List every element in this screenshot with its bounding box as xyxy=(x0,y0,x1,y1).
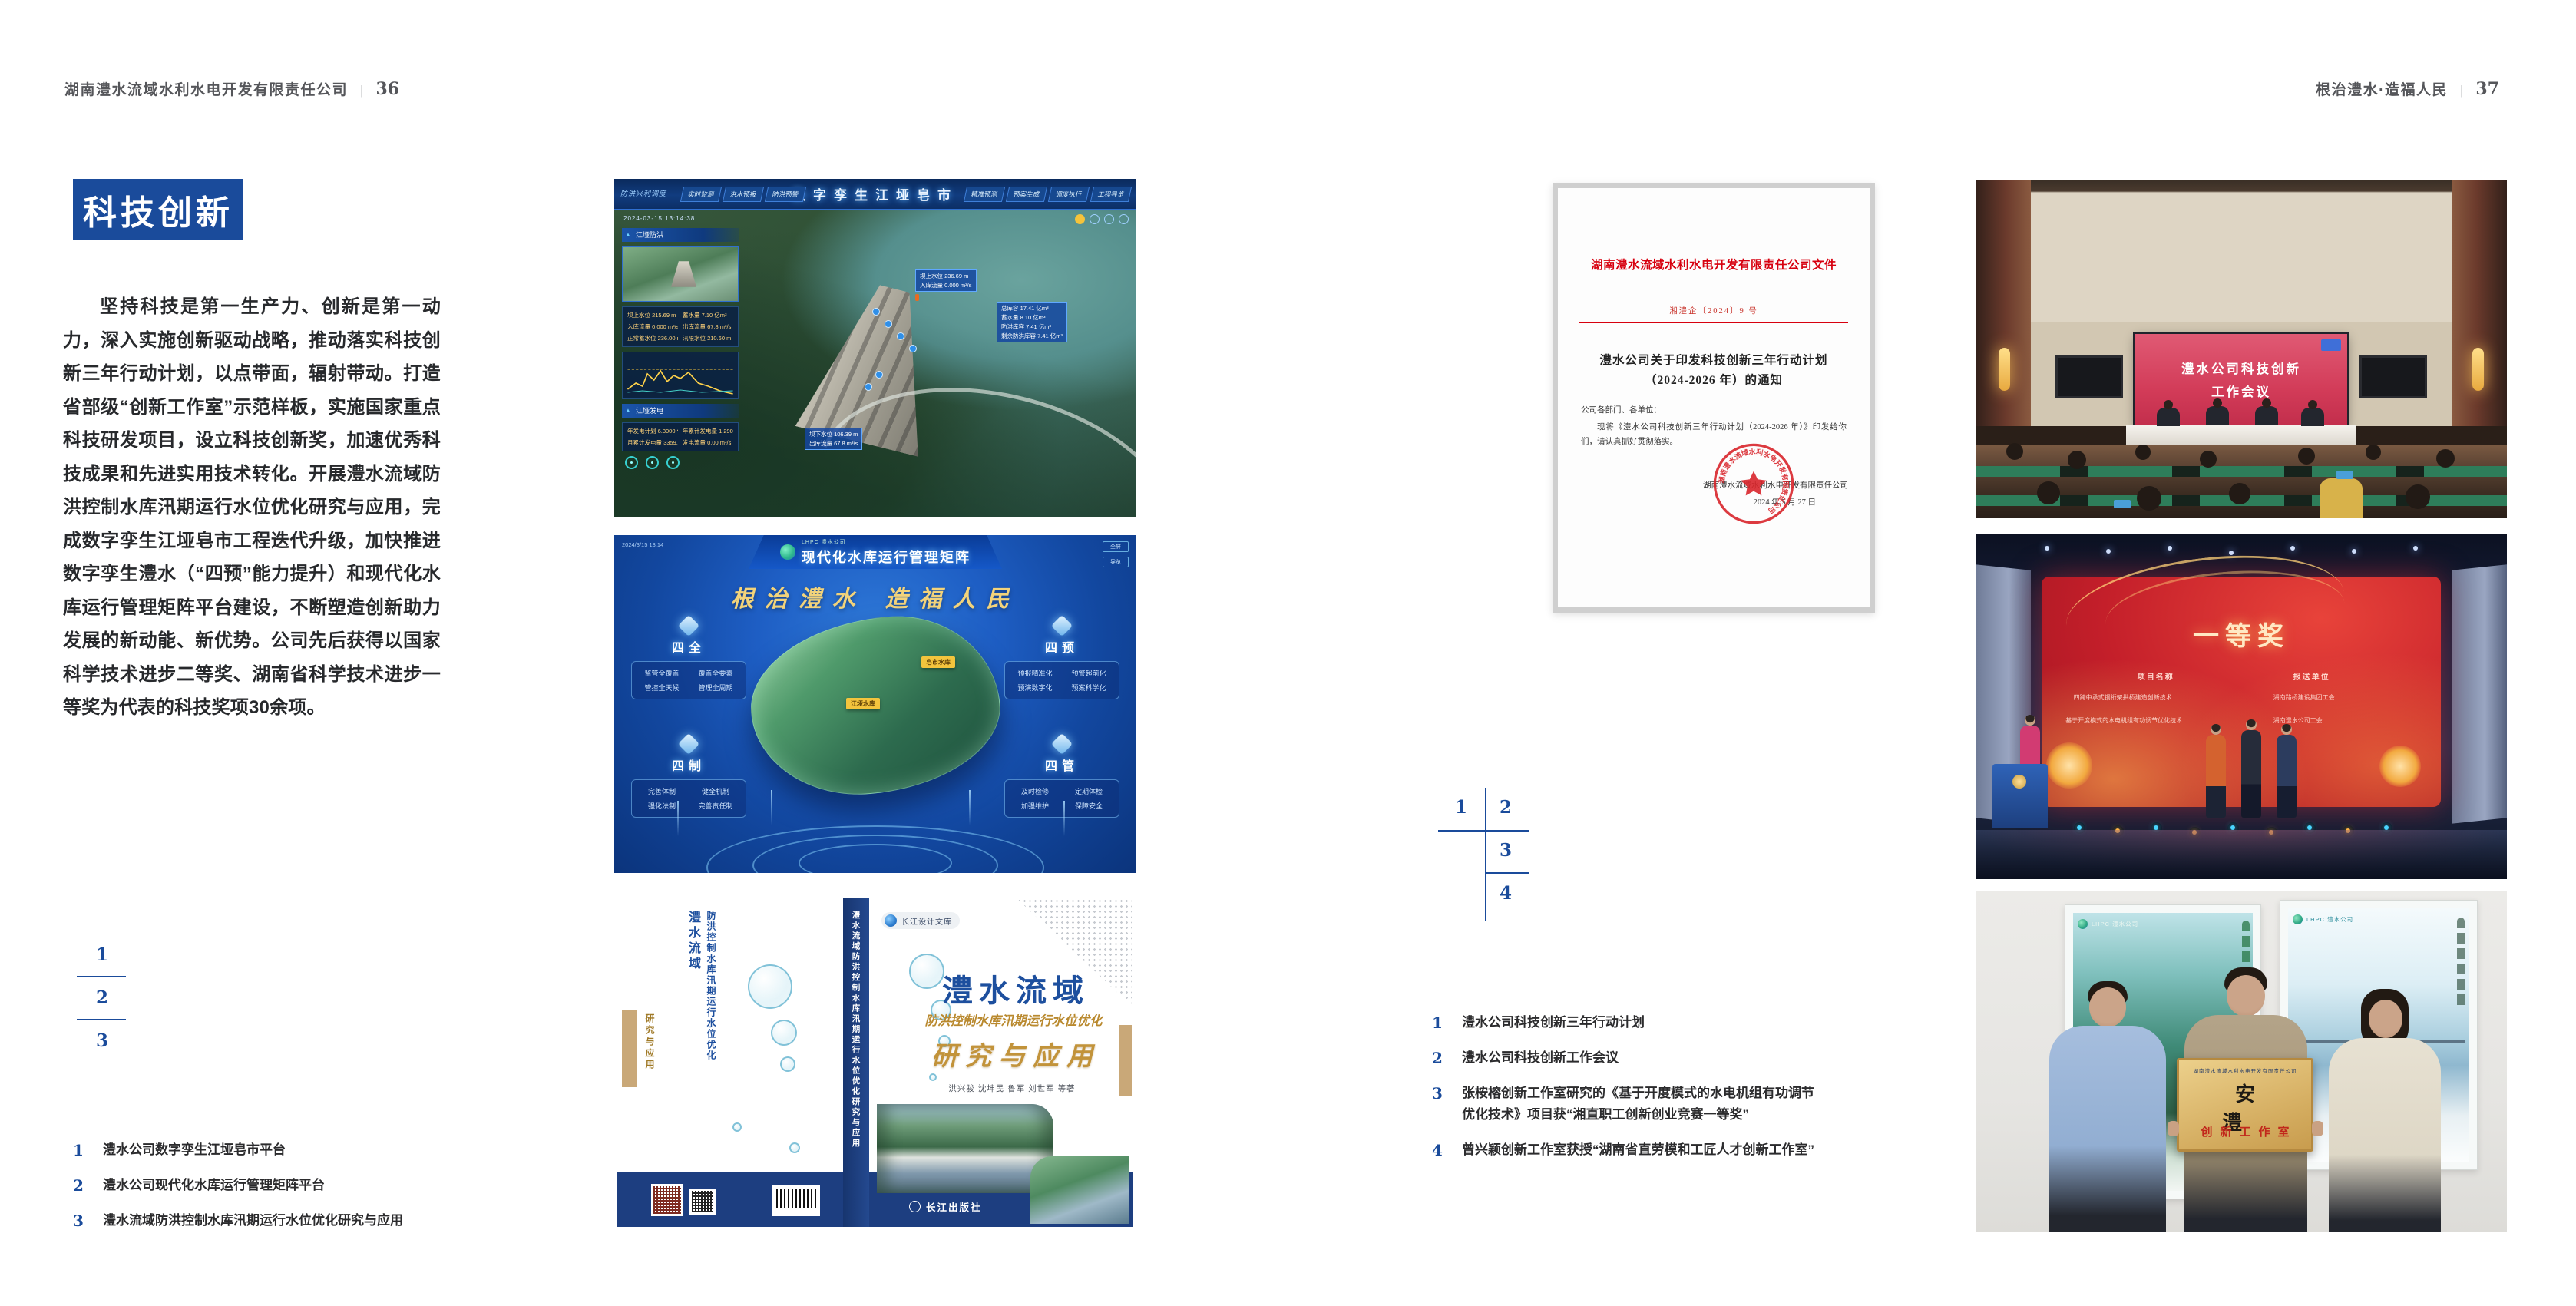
gauge-icon xyxy=(625,456,638,469)
group-item: 加强维护 xyxy=(1010,801,1060,811)
tab-prediction: 精准预测 xyxy=(964,187,1005,202)
audience-floor xyxy=(1976,445,2507,518)
group-item: 强化法制 xyxy=(637,801,687,811)
publisher-logo-icon xyxy=(885,914,897,927)
header-divider: | xyxy=(360,83,363,98)
group-icon xyxy=(1051,733,1073,755)
caption-text: 澧水公司现代化水库运行管理矩阵平台 xyxy=(103,1175,325,1196)
ceiling-lights xyxy=(1976,180,2507,322)
screen-logo-icon xyxy=(2321,339,2341,351)
figure-matrix-platform: 2024/3/15 13:14 全屏 导览 LHPC 澧水公司 现代化水库运行管… xyxy=(614,535,1136,873)
light-pillar xyxy=(677,801,679,836)
dashboard-timestamp: 2024-03-15 13:14:38 xyxy=(623,215,695,222)
dashboard-left-sidebar: 江垭防洪 坝上水位 215.69 m 蓄水量 7.10 亿m³ 入库流量 0.0… xyxy=(622,228,739,511)
audience-head xyxy=(2068,451,2086,469)
group-item: 及时检修 xyxy=(1010,786,1060,796)
light-pillar xyxy=(771,790,772,825)
poster-logo-text: LHPC 澧水公司 xyxy=(2306,915,2353,924)
hand xyxy=(2312,1121,2323,1136)
project-cell: 基于开度模式的水电机组有功调节优化技术 xyxy=(2065,716,2182,725)
glow-orb xyxy=(2379,746,2421,787)
poster-logo: LHPC 澧水公司 xyxy=(2293,914,2353,924)
series-label: 长江设计文库 xyxy=(881,912,960,929)
tag-row: 蓄水量 8.10 亿m³ xyxy=(1001,313,1063,322)
captions-right: 1 澧水公司科技创新三年行动计划 2 澧水公司科技创新工作会议 3 张桉榕创新工… xyxy=(1432,1012,1954,1175)
figure-index-1: 1 xyxy=(1450,797,1473,818)
gate-marker-icon xyxy=(865,383,872,391)
lhpc-logo-icon xyxy=(2293,914,2303,924)
lhpc-logo-icon xyxy=(2078,919,2088,929)
tab-project-tour: 工程导览 xyxy=(1090,187,1132,202)
caption-number: 4 xyxy=(1432,1139,1450,1161)
bubble-decoration xyxy=(789,1142,800,1153)
woman-face xyxy=(2369,1000,2402,1038)
tissue-box xyxy=(2336,471,2353,479)
publisher-mark: 长江出版社 xyxy=(909,1199,982,1214)
qr-code xyxy=(689,1189,716,1215)
caption-text: 澧水公司科技创新工作会议 xyxy=(1462,1047,1619,1069)
powerstation-photo xyxy=(1030,1156,1129,1224)
metric-row: 入库流量 0.000 m³/s xyxy=(627,322,678,331)
caption-number: 3 xyxy=(1432,1083,1450,1104)
back-title2: 研究与应用 xyxy=(643,1013,656,1071)
glow-orb xyxy=(2046,742,2092,789)
light-pillar xyxy=(969,790,971,825)
series-text: 长江设计文库 xyxy=(901,915,952,927)
poster-logo-text: LHPC 澧水公司 xyxy=(2092,920,2138,928)
group-panel: 监管全覆盖 覆盖全要素 管控全天候 管理全周期 xyxy=(631,661,746,699)
woman-body xyxy=(2329,1038,2441,1232)
group-item: 健全机制 xyxy=(690,786,741,796)
stage-light-icon xyxy=(2168,546,2172,551)
speaker-figure xyxy=(2206,406,2229,425)
head-table xyxy=(2126,425,2356,445)
tan-block xyxy=(622,1010,637,1087)
group-item: 预案科学化 xyxy=(1063,683,1114,693)
brochure-spread: 湖南澧水流域水利水电开发有限责任公司 | 36 科技创新 坚持科技是第一生产力、… xyxy=(0,0,2576,1306)
caption-item: 3 澧水流域防洪控制水库汛期运行水位优化研究与应用 xyxy=(73,1210,534,1232)
group-panel: 预报精准化 预警超前化 预演数字化 预案科学化 xyxy=(1004,661,1119,699)
back-subtitle: 防洪控制水库汛期运行水位优化 xyxy=(705,911,718,1110)
book-title: 澧水流域 xyxy=(908,966,1124,1010)
group-label: 四全 xyxy=(631,637,746,656)
group-item: 定期体检 xyxy=(1063,786,1114,796)
metric-row: 发电流量 0.00 m³/s xyxy=(683,438,733,447)
speaker-figure xyxy=(2157,408,2180,426)
power-metrics-panel: 年发电计划 6.3000 亿kWh 年累计发电量 1.2907 亿kWh 月累计… xyxy=(622,422,739,451)
captions-left: 1 澧水公司数字孪生江垭皂市平台 2 澧水公司现代化水库运行管理矩阵平台 3 澧… xyxy=(73,1139,534,1245)
book-title2: 研究与应用 xyxy=(908,1035,1124,1073)
book-subtitle: 防洪控制水库汛期运行水位优化 xyxy=(900,1010,1127,1029)
locate-icon xyxy=(1104,214,1114,224)
flood-metrics-panel: 坝上水位 215.69 m 蓄水量 7.10 亿m³ 入库流量 0.000 m³… xyxy=(622,306,739,347)
speaker-figure xyxy=(2255,406,2278,425)
group-item: 监管全覆盖 xyxy=(637,668,687,678)
man1-face xyxy=(2089,987,2126,1027)
calligraphy-strip xyxy=(2457,918,2465,1010)
metric-row: 蓄水量 7.10 亿m³ xyxy=(683,311,733,319)
presenter-suit xyxy=(2241,730,2261,818)
fullscreen-button: 全屏 xyxy=(1103,541,1129,552)
group-item: 预报精准化 xyxy=(1010,668,1060,678)
studio-plaque: 湖南澧水流域水利水电开发有限责任公司 安 澧 创新工作室 xyxy=(2177,1058,2313,1152)
audience-head xyxy=(2200,451,2217,468)
group-label: 四预 xyxy=(1004,637,1119,656)
document-title-line1: 澧水公司关于印发科技创新三年行动计划 xyxy=(1558,351,1870,368)
book-front-cover: 长江设计文库 澧水流域 防洪控制水库汛期运行水位优化 研究与应用 洪兴骏 沈坤民… xyxy=(869,898,1132,1227)
map-data-tag: 坝上水位 236.69 m 入库流量 0.000 m³/s xyxy=(915,269,977,292)
publisher-name: 长江出版社 xyxy=(926,1199,982,1214)
awardee-navy xyxy=(2277,735,2297,818)
matrix-timestamp: 2024/3/15 13:14 xyxy=(622,541,663,548)
bubble-decoration xyxy=(780,1056,795,1072)
alert-icon xyxy=(1075,214,1085,224)
panel-flood-title: 江垭防洪 xyxy=(622,228,739,242)
group-item: 覆盖全要素 xyxy=(690,668,741,678)
wall-sconce-icon xyxy=(1999,348,2010,391)
map-data-tag: 总库容 17.41 亿m³ 蓄水量 8.10 亿m³ 防洪库容 7.41 亿m³… xyxy=(997,302,1067,342)
awardee-head xyxy=(2211,724,2221,735)
presenter-head xyxy=(2246,719,2257,730)
group-label: 四制 xyxy=(631,755,746,774)
caption-number: 2 xyxy=(73,1175,91,1196)
audience-head xyxy=(2366,445,2381,460)
host-head xyxy=(2025,715,2035,726)
dashboard-tabs-left: 实时监测 洪水预报 防洪预警 xyxy=(682,187,805,202)
audience-head xyxy=(2137,486,2161,511)
document-title-line2: （2024-2026 年）的通知 xyxy=(1558,371,1870,388)
group-item: 保障安全 xyxy=(1063,801,1114,811)
body-paragraph: 坚持科技是第一生产力、创新是第一动力，深入实施创新驱动战略，推动落实科技创新三年… xyxy=(63,290,441,725)
header-divider: | xyxy=(2460,83,2463,98)
audience-head xyxy=(2229,483,2250,504)
metric-row: 坝上水位 215.69 m xyxy=(627,311,678,319)
gauge-icon xyxy=(666,456,680,469)
back-title: 澧水流域 xyxy=(683,911,702,972)
caption-number: 1 xyxy=(73,1139,91,1161)
plaque-subtitle: 创新工作室 xyxy=(2179,1123,2311,1139)
column-submitting-unit: 报送单位 xyxy=(2293,670,2330,682)
book-back-cover: 澧水流域 防洪控制水库汛期运行水位优化 研究与应用 xyxy=(619,898,843,1227)
stage-light-icon xyxy=(2290,546,2295,551)
company-slogan: 根治澧水·造福人民 xyxy=(2316,78,2448,99)
audience-head xyxy=(2298,448,2315,465)
gate-marker-icon xyxy=(885,320,892,328)
figure-index-divider xyxy=(77,1019,126,1020)
group-icon xyxy=(678,733,699,755)
figure-index-2: 2 xyxy=(1494,797,1517,818)
caption-text: 曾兴颖创新工作室获授“湖南省直劳模和工匠人才创新工作室” xyxy=(1462,1139,1814,1161)
document-salutation: 公司各部门、各单位： xyxy=(1581,403,1662,418)
stage-light-icon xyxy=(2106,549,2111,554)
figure-index-divider xyxy=(1486,872,1529,874)
caption-item: 2 澧水公司现代化水库运行管理矩阵平台 xyxy=(73,1175,534,1196)
metric-row: 月累计发电量 3359.21 万kWh xyxy=(627,438,678,447)
tag-row: 坝下水位 106.39 m xyxy=(809,430,858,438)
tag-row: 防洪库容 7.41 亿m³ xyxy=(1001,322,1063,331)
gate-marker-icon xyxy=(909,345,917,352)
stage-floor xyxy=(1976,830,2507,879)
column-project-name: 项目名称 xyxy=(2138,670,2174,682)
stage-light-icon xyxy=(2045,546,2049,551)
page-number-left: 36 xyxy=(375,79,399,99)
map-label-zaoshi: 皂市水库 xyxy=(921,656,955,668)
worker-marker-icon xyxy=(915,294,919,301)
plaque-header: 湖南澧水流域水利水电开发有限责任公司 xyxy=(2179,1066,2311,1074)
dam-gorge-photo xyxy=(877,1104,1053,1193)
side-display xyxy=(2359,355,2427,398)
official-red-stamp: 湖南澧水流域水利水电开发有限责任公司 xyxy=(1711,441,1796,526)
audience-head xyxy=(2037,481,2060,504)
tab-plan-generation: 预案生成 xyxy=(1006,187,1047,202)
audience-head xyxy=(2436,449,2455,468)
tab-flood-warning: 防洪预警 xyxy=(765,187,806,202)
awardee-head xyxy=(2281,724,2292,735)
page-number-right: 37 xyxy=(2475,79,2499,99)
qr-code xyxy=(651,1184,683,1216)
bubble-decoration xyxy=(771,1020,797,1046)
hand xyxy=(2168,1121,2179,1136)
section-title: 科技创新 xyxy=(73,179,243,240)
caption-item: 1 澧水公司数字孪生江垭皂市平台 xyxy=(73,1139,534,1161)
group-item: 预演数字化 xyxy=(1010,683,1060,693)
tag-row: 出库流量 67.8 m³/s xyxy=(809,439,858,448)
project-cell: 四跨中承式钢桁架拱桥建造创新技术 xyxy=(2074,693,2172,702)
page-left-header: 湖南澧水流域水利水电开发有限责任公司 | 36 xyxy=(64,78,399,99)
metric-row: 出库流量 67.8 m³/s xyxy=(683,322,733,331)
figure-index-3: 3 xyxy=(91,1030,114,1051)
tab-flood-forecast: 洪水预报 xyxy=(723,187,764,202)
audience-figure xyxy=(2320,478,2363,518)
wall-sconce-icon xyxy=(2472,348,2484,391)
panel-power-title: 江垭发电 xyxy=(622,404,739,418)
gate-marker-icon xyxy=(872,308,880,316)
figure-index-1: 1 xyxy=(91,944,114,965)
photo-innovation-studio-group: LHPC 澧水公司 LHPC 澧水公司 湖南澧水流域水利水电开发有限责任公司 xyxy=(1976,891,2507,1232)
audience-head xyxy=(2135,445,2151,460)
group-panel: 及时检修 定期体检 加强维护 保障安全 xyxy=(1004,779,1119,818)
tag-row: 坝上水位 236.69 m xyxy=(920,272,972,280)
photo-award-ceremony: 一等奖 项目名称 报送单位 四跨中承式钢桁架拱桥建造创新技术 湖南路桥建设集团工… xyxy=(1976,534,2507,879)
figure-official-document: 湖南澧水流域水利水电开发有限责任公司文件 湘澧企〔2024〕9 号 澧水公司关于… xyxy=(1553,183,1875,613)
tag-row: 入库流量 0.000 m³/s xyxy=(920,281,972,289)
spine-title: 澧水流域防洪控制水库汛期运行水位优化研究与应用 xyxy=(851,911,862,1149)
group-icon xyxy=(1051,615,1073,636)
matrix-logo-text: LHPC 澧水公司 xyxy=(802,538,846,546)
group-item: 完善体制 xyxy=(637,786,687,796)
man2-face xyxy=(2227,975,2265,1017)
caption-item: 3 张桉榕创新工作室研究的《基于开度模式的水电机组有功调节优化技术》项目获“湘直… xyxy=(1432,1083,1954,1126)
caption-text: 澧水公司科技创新三年行动计划 xyxy=(1462,1012,1645,1033)
group-item: 完善责任制 xyxy=(690,801,741,811)
metric-row: 年累计发电量 1.2907 亿kWh xyxy=(683,427,733,435)
gate-marker-icon xyxy=(897,332,904,340)
caption-item: 1 澧水公司科技创新三年行动计划 xyxy=(1432,1012,1954,1033)
figure-index-divider xyxy=(77,976,126,977)
tag-row: 剩余防洪库容 7.41 亿m³ xyxy=(1001,332,1063,340)
book-authors: 洪兴骏 沈坤民 鲁军 刘世军 等著 xyxy=(900,1083,1124,1094)
audience-head xyxy=(2006,443,2023,460)
caption-item: 4 曾兴颖创新工作室获授“湖南省直劳模和工匠人才创新工作室” xyxy=(1432,1139,1954,1161)
tissue-box xyxy=(2114,500,2131,508)
bubble-decoration xyxy=(748,964,792,1009)
page-right-header: 根治澧水·造福人民 | 37 xyxy=(2316,78,2499,99)
group-panel: 完善体制 健全机制 强化法制 完善责任制 xyxy=(631,779,746,818)
figure-index-divider xyxy=(1438,830,1529,832)
matrix-group-sizhi: 四制 完善体制 健全机制 强化法制 完善责任制 xyxy=(631,736,746,818)
speaker-figure xyxy=(2301,408,2324,426)
poster-logo: LHPC 澧水公司 xyxy=(2078,919,2138,929)
matrix-title: 现代化水库运行管理矩阵 xyxy=(802,547,971,567)
matrix-group-siquan: 四全 监管全覆盖 覆盖全要素 管控全天候 管理全周期 xyxy=(631,618,746,699)
dam-thumbnail xyxy=(622,246,739,302)
figure-index-4: 4 xyxy=(1494,883,1517,904)
bubble-decoration xyxy=(929,1073,937,1081)
screen-title-line1: 澧水公司科技创新 xyxy=(2135,359,2347,377)
org-cell: 湖南澧水公司工会 xyxy=(2273,716,2323,725)
first-prize-title: 一等奖 xyxy=(2042,615,2441,653)
document-headline: 湖南澧水流域水利水电开发有限责任公司文件 xyxy=(1558,256,1870,273)
publisher-logo-icon xyxy=(909,1201,921,1212)
podium xyxy=(1992,764,2048,828)
map-label-jiangya: 江垭水库 xyxy=(846,698,880,709)
awardee-orange xyxy=(2206,735,2226,818)
org-cell: 湖南路桥建设集团工会 xyxy=(2273,693,2335,702)
matrix-group-siyu: 四预 预报精准化 预警超前化 预演数字化 预案科学化 xyxy=(1004,618,1119,699)
caption-text: 澧水流域防洪控制水库汛期运行水位优化研究与应用 xyxy=(103,1210,403,1232)
tab-realtime-monitor: 实时监测 xyxy=(680,187,722,202)
settings-icon xyxy=(1119,214,1129,224)
caption-text: 张桉榕创新工作室研究的《基于开度模式的水电机组有功调节优化技术》项目获“湘直职工… xyxy=(1462,1083,1823,1126)
screen-title-line2: 工作会议 xyxy=(2135,382,2347,400)
caption-text: 澧水公司数字孪生江垭皂市平台 xyxy=(103,1139,286,1161)
gate-marker-icon xyxy=(875,371,883,379)
map-data-tag: 坝下水位 106.39 m 出库流量 67.8 m³/s xyxy=(805,428,862,450)
lhpc-logo-icon xyxy=(780,544,795,560)
tag-row: 总库容 17.41 亿m³ xyxy=(1001,304,1063,312)
photo-innovation-meeting: 澧水公司科技创新 工作会议 xyxy=(1976,180,2507,518)
green-table-row xyxy=(1976,466,2507,477)
side-display xyxy=(2055,355,2123,398)
group-item: 管理全周期 xyxy=(690,683,741,693)
red-rule xyxy=(1579,322,1848,323)
layers-icon xyxy=(1090,214,1100,224)
stage-side-panel xyxy=(2452,564,2507,824)
dashboard-tabs-right: 精准预测 预案生成 调度执行 工程导览 xyxy=(965,187,1130,202)
figure-index-2: 2 xyxy=(91,987,114,1008)
tab-dispatch: 调度执行 xyxy=(1048,187,1090,202)
caption-number: 1 xyxy=(1432,1012,1450,1033)
gauge-icon xyxy=(646,456,659,469)
matrix-group-siguan: 四管 及时检修 定期体检 加强维护 保障安全 xyxy=(1004,736,1119,818)
stage-light-icon xyxy=(2229,551,2234,555)
group-label: 四管 xyxy=(1004,755,1119,774)
figure-index-vline xyxy=(1485,788,1486,921)
audience-head xyxy=(2406,484,2430,509)
group-icon xyxy=(678,615,699,636)
figure-digital-twin-dashboard: 防洪兴利调度 数字孪生江垭皂市 实时监测 洪水预报 防洪预警 精准预测 预案生成… xyxy=(614,179,1136,517)
book-spine: 澧水流域防洪控制水库汛期运行水位优化研究与应用 xyxy=(843,898,869,1227)
caption-number: 3 xyxy=(73,1210,91,1232)
bubble-decoration xyxy=(732,1122,742,1132)
light-pillar xyxy=(1063,801,1065,836)
turbine-gauges xyxy=(622,456,739,469)
figure-index-3: 3 xyxy=(1494,840,1517,861)
document-number: 湘澧企〔2024〕9 号 xyxy=(1558,305,1870,316)
figure-book-cover: 澧水流域 防洪控制水库汛期运行水位优化 研究与应用 澧水流域防洪控制水库汛期运行… xyxy=(614,891,1136,1232)
tour-button: 导览 xyxy=(1103,557,1129,567)
company-name: 湖南澧水流域水利水电开发有限责任公司 xyxy=(64,78,348,99)
matrix-title-bar: LHPC 澧水公司 现代化水库运行管理矩阵 xyxy=(749,535,1002,569)
man1-body xyxy=(2049,1026,2166,1232)
matrix-slogan: 根治澧水 造福人民 xyxy=(614,580,1136,613)
caption-number: 2 xyxy=(1432,1047,1450,1069)
barcode xyxy=(772,1185,820,1216)
caption-item: 2 澧水公司科技创新工作会议 xyxy=(1432,1047,1954,1069)
metric-row: 汛限水位 210.60 m xyxy=(683,334,733,342)
water-level-chart xyxy=(622,352,739,399)
stage-light-icon xyxy=(2352,549,2356,554)
group-item: 预警超前化 xyxy=(1063,668,1114,678)
metric-row: 年发电计划 6.3000 亿kWh xyxy=(627,427,678,435)
dashboard-toolbar-icons xyxy=(1075,214,1129,224)
metric-row: 正常蓄水位 236.00 m xyxy=(627,334,678,342)
stage-light-icon xyxy=(2413,546,2418,551)
group-item: 管控全天候 xyxy=(637,683,687,693)
